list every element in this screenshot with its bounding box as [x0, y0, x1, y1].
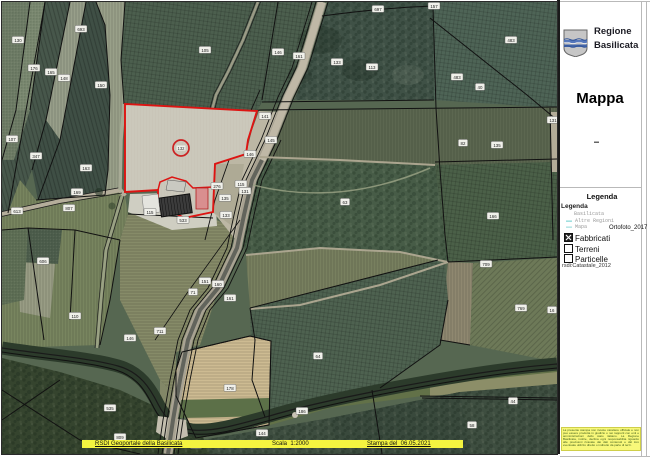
- svg-text:160: 160: [214, 282, 222, 287]
- svg-text:483: 483: [453, 75, 461, 80]
- svg-text:697: 697: [374, 7, 382, 12]
- svg-text:176: 176: [30, 66, 38, 71]
- svg-text:483: 483: [507, 38, 515, 43]
- svg-text:535: 535: [106, 406, 114, 411]
- svg-text:161: 161: [295, 54, 303, 59]
- svg-text:276: 276: [213, 184, 221, 189]
- svg-text:157: 157: [430, 4, 438, 9]
- svg-text:178: 178: [226, 386, 234, 391]
- svg-text:107: 107: [8, 137, 16, 142]
- svg-text:133: 133: [333, 60, 341, 65]
- svg-text:131: 131: [241, 189, 249, 194]
- svg-text:113: 113: [369, 65, 377, 70]
- svg-text:133: 133: [222, 213, 230, 218]
- svg-text:807: 807: [65, 206, 73, 211]
- svg-text:110: 110: [72, 314, 80, 319]
- svg-text:115: 115: [147, 210, 155, 215]
- svg-text:165: 165: [47, 70, 55, 75]
- svg-text:146: 146: [246, 152, 254, 157]
- svg-text:146: 146: [274, 50, 282, 55]
- svg-text:16: 16: [550, 308, 555, 313]
- svg-text:693: 693: [77, 27, 85, 32]
- svg-text:148: 148: [60, 76, 68, 81]
- svg-text:163: 163: [82, 166, 90, 171]
- svg-text:347: 347: [32, 154, 40, 159]
- svg-text:150: 150: [97, 83, 105, 88]
- svg-text:71: 71: [191, 290, 196, 295]
- svg-text:711: 711: [157, 329, 165, 334]
- svg-text:132: 132: [178, 146, 186, 151]
- svg-text:64: 64: [316, 354, 321, 359]
- svg-text:130: 130: [14, 38, 22, 43]
- svg-text:151: 151: [201, 279, 209, 284]
- svg-text:533: 533: [179, 218, 187, 223]
- svg-text:82: 82: [461, 141, 466, 146]
- svg-text:769: 769: [517, 306, 525, 311]
- svg-text:135: 135: [221, 196, 229, 201]
- svg-text:141: 141: [261, 114, 269, 119]
- svg-text:613: 613: [13, 209, 21, 214]
- svg-text:40: 40: [478, 85, 483, 90]
- svg-text:169: 169: [73, 190, 81, 195]
- svg-text:44: 44: [511, 399, 516, 404]
- svg-text:131: 131: [549, 118, 557, 123]
- svg-text:115: 115: [238, 182, 246, 187]
- svg-text:105: 105: [201, 48, 209, 53]
- svg-text:58: 58: [470, 423, 475, 428]
- svg-text:709: 709: [482, 262, 490, 267]
- svg-text:63: 63: [343, 200, 348, 205]
- svg-text:135: 135: [493, 143, 501, 148]
- svg-text:606: 606: [39, 259, 47, 264]
- svg-text:146: 146: [126, 336, 134, 341]
- svg-text:186: 186: [298, 409, 306, 414]
- svg-text:144: 144: [258, 431, 266, 436]
- svg-text:161: 161: [226, 296, 234, 301]
- svg-text:166: 166: [489, 214, 497, 219]
- svg-text:145: 145: [267, 138, 275, 143]
